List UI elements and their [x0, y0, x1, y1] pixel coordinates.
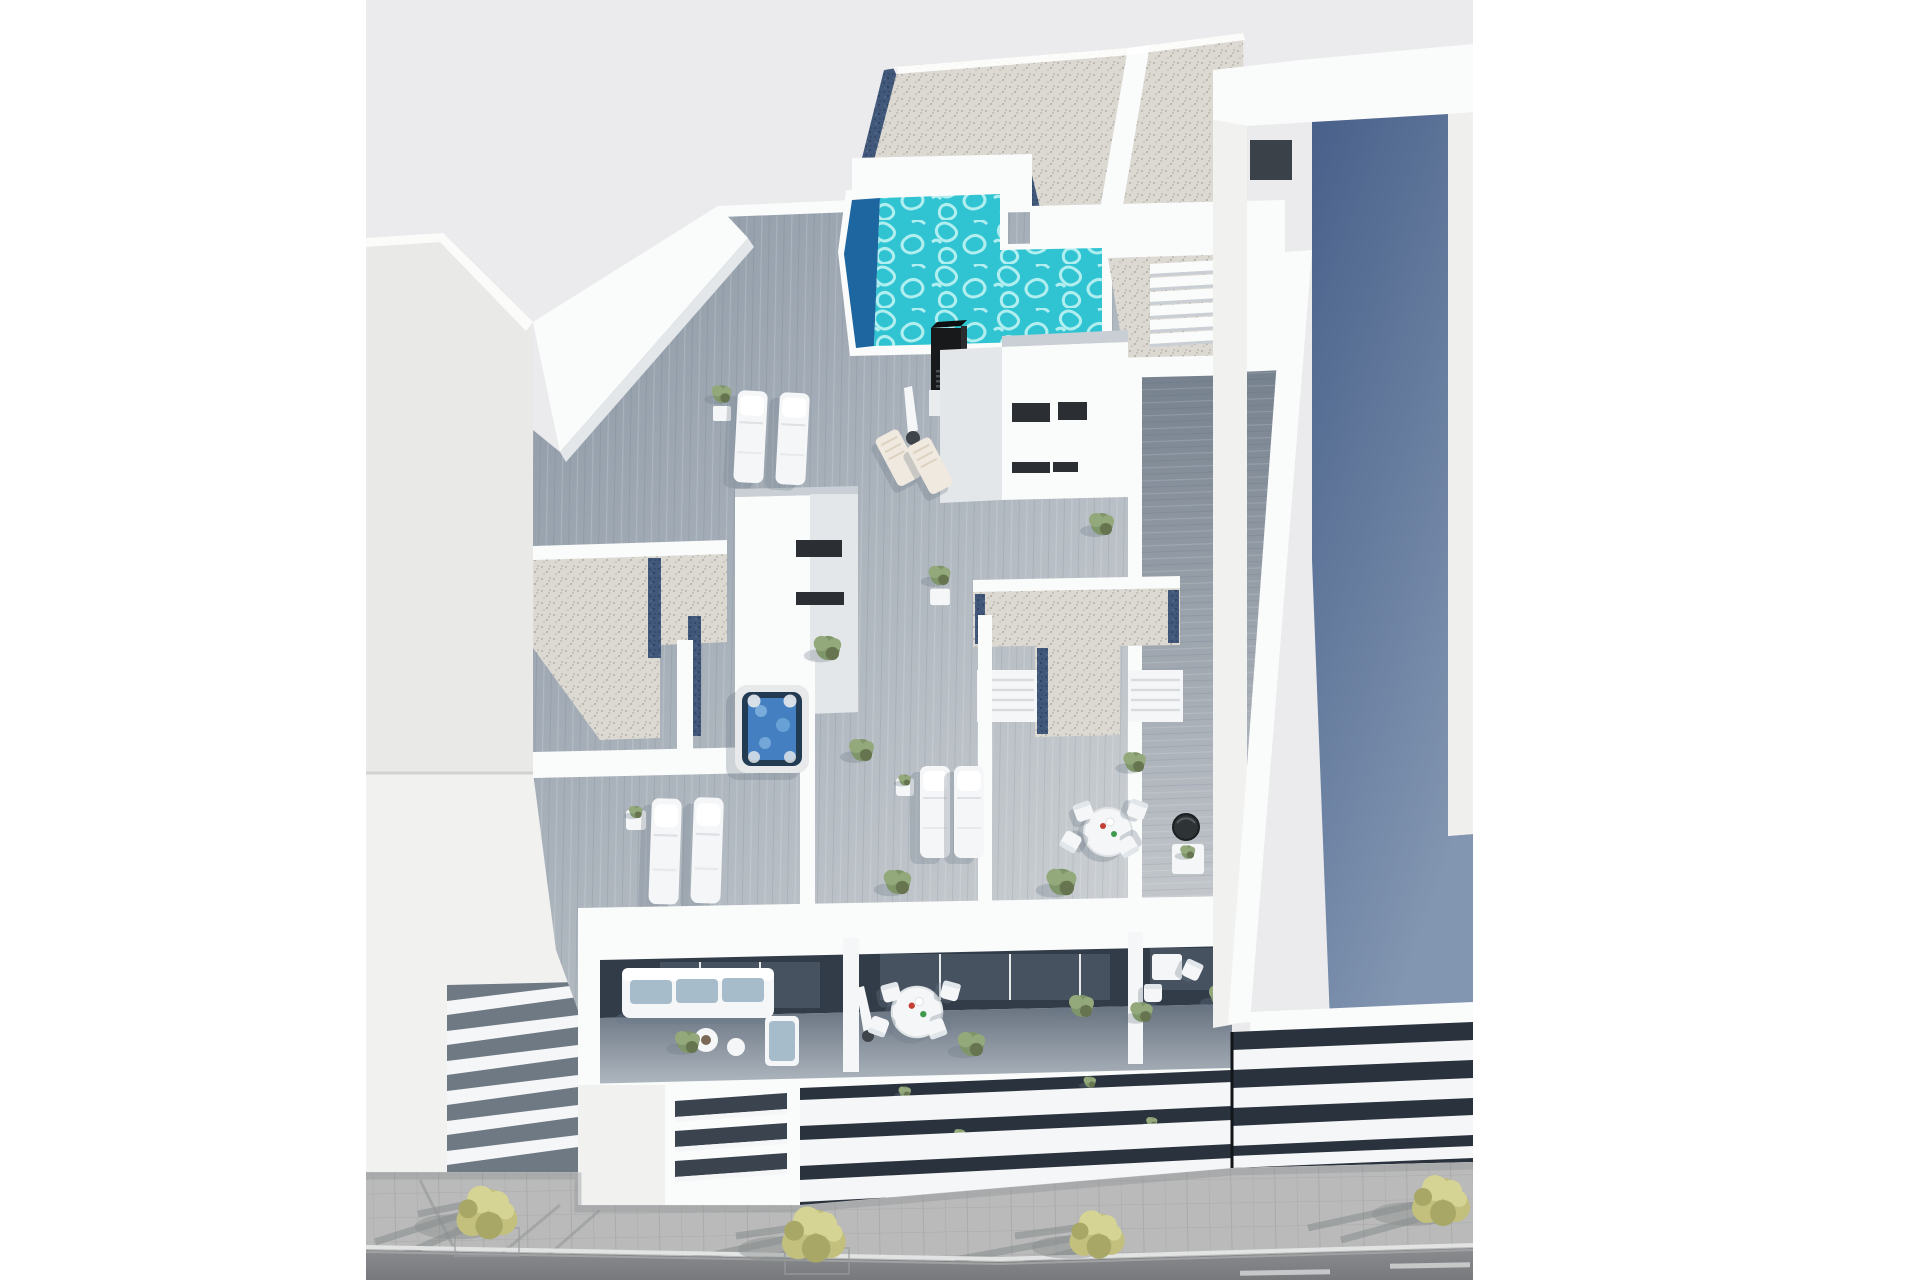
- penthouse-box: [735, 486, 858, 715]
- window-slit: [1012, 462, 1050, 473]
- sun-lounger: [680, 797, 724, 911]
- jacuzzi: [726, 685, 809, 780]
- left-building-roof-block: [366, 233, 533, 772]
- gravel-blue-strip: [1037, 648, 1048, 734]
- louver-vent-block: [665, 1085, 800, 1205]
- balcony-divider: [843, 938, 859, 1072]
- sun-lounger: [944, 766, 984, 864]
- terrace-divider-wall: [677, 640, 693, 760]
- right-building-far-parapet: [1448, 112, 1473, 836]
- window-slit: [1058, 402, 1087, 420]
- sun-lounger: [765, 391, 810, 491]
- aerial-3d-render: [0, 0, 1920, 1280]
- window-slit: [1012, 403, 1050, 422]
- right-slab-facade: [1232, 1022, 1473, 1168]
- bbq-grill: [1173, 814, 1199, 840]
- left-building-louver-panel: [447, 982, 578, 1178]
- gravel-blue-strip: [648, 558, 661, 658]
- window-slit: [796, 592, 844, 605]
- window-slit: [1053, 462, 1078, 472]
- window-slit: [796, 540, 842, 557]
- gravel-blue-strip: [1168, 590, 1179, 643]
- sofa-set: [616, 968, 776, 1024]
- coffee-table: [727, 1038, 745, 1056]
- sun-lounger: [638, 798, 682, 912]
- sun-lounger: [723, 389, 768, 489]
- stairwell-box: [940, 330, 1128, 503]
- roof-doorway: [1250, 140, 1292, 180]
- coffee-table-tray: [701, 1035, 711, 1045]
- daybed: [765, 1016, 799, 1066]
- architectural-render-page: [0, 0, 1920, 1280]
- roof-shutter-box: [1128, 670, 1183, 722]
- facade-plain-wall: [578, 1085, 666, 1207]
